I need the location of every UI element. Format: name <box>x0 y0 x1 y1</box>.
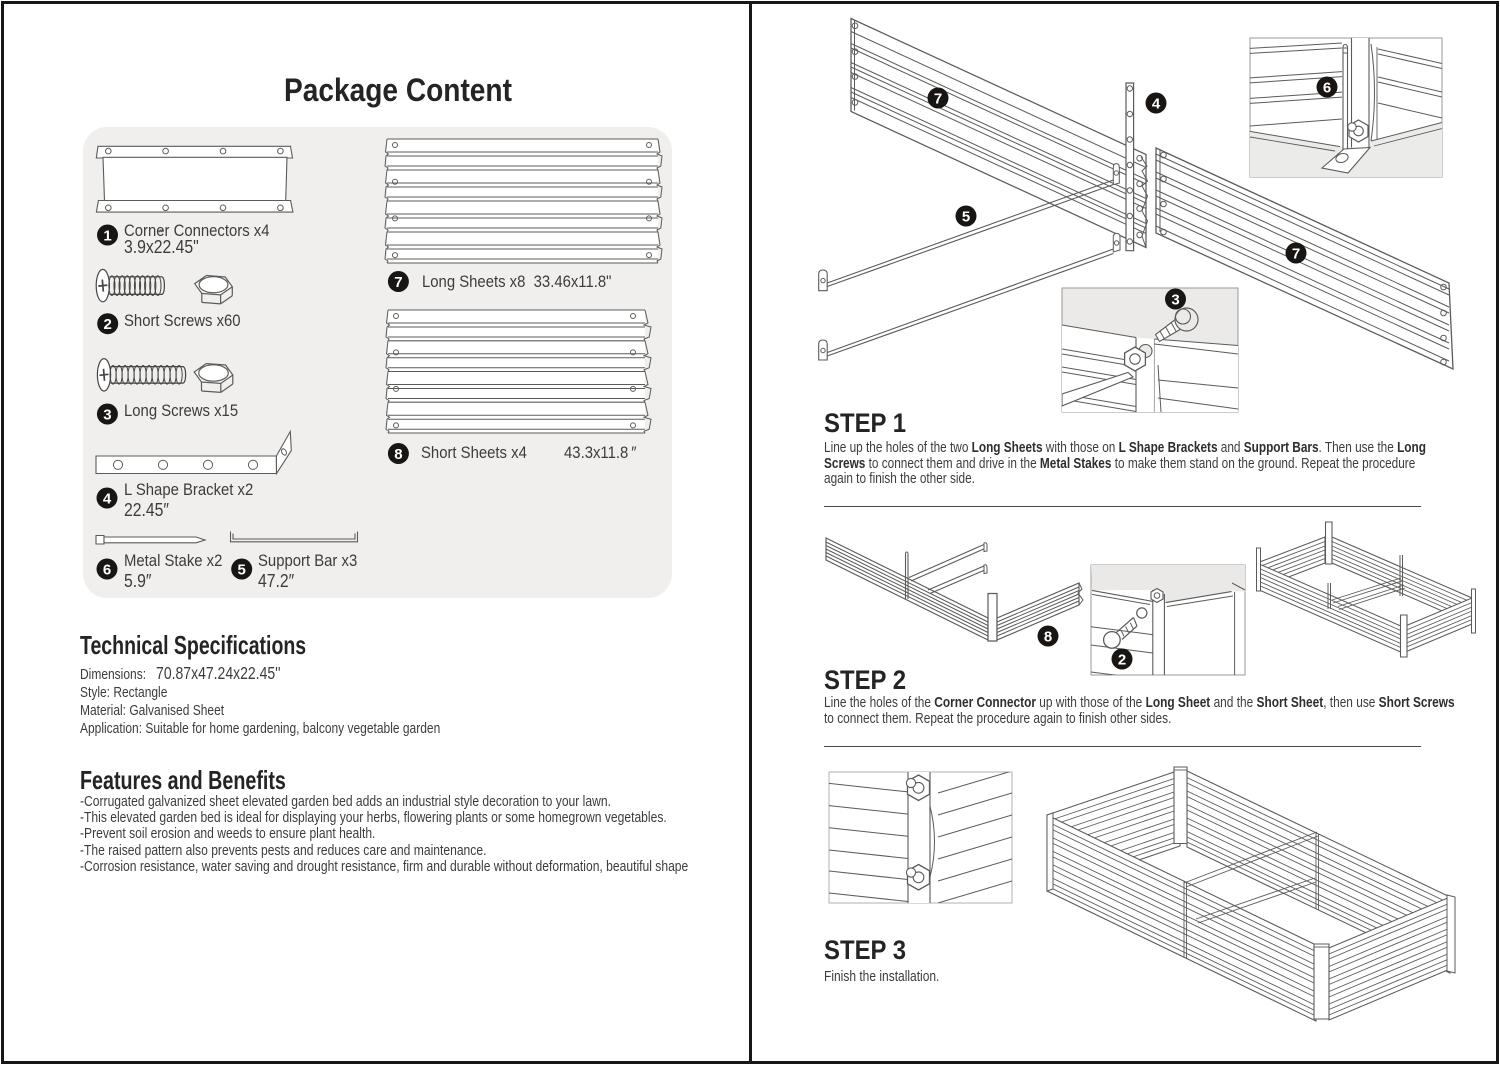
svg-text:3: 3 <box>1171 291 1179 308</box>
svg-text:8: 8 <box>394 446 402 463</box>
svg-text:2: 2 <box>104 316 112 333</box>
svg-text:7: 7 <box>934 90 942 107</box>
svg-text:4: 4 <box>103 490 112 507</box>
svg-text:7: 7 <box>394 274 402 291</box>
svg-text:8: 8 <box>1044 628 1052 645</box>
svg-text:7: 7 <box>1292 245 1300 262</box>
svg-text:3: 3 <box>103 406 111 423</box>
svg-text:5: 5 <box>238 561 246 578</box>
svg-text:1: 1 <box>103 227 111 244</box>
svg-text:6: 6 <box>103 561 111 578</box>
svg-text:6: 6 <box>1323 79 1331 96</box>
svg-text:5: 5 <box>962 208 970 225</box>
svg-text:4: 4 <box>1152 95 1161 112</box>
svg-text:2: 2 <box>1118 651 1126 668</box>
